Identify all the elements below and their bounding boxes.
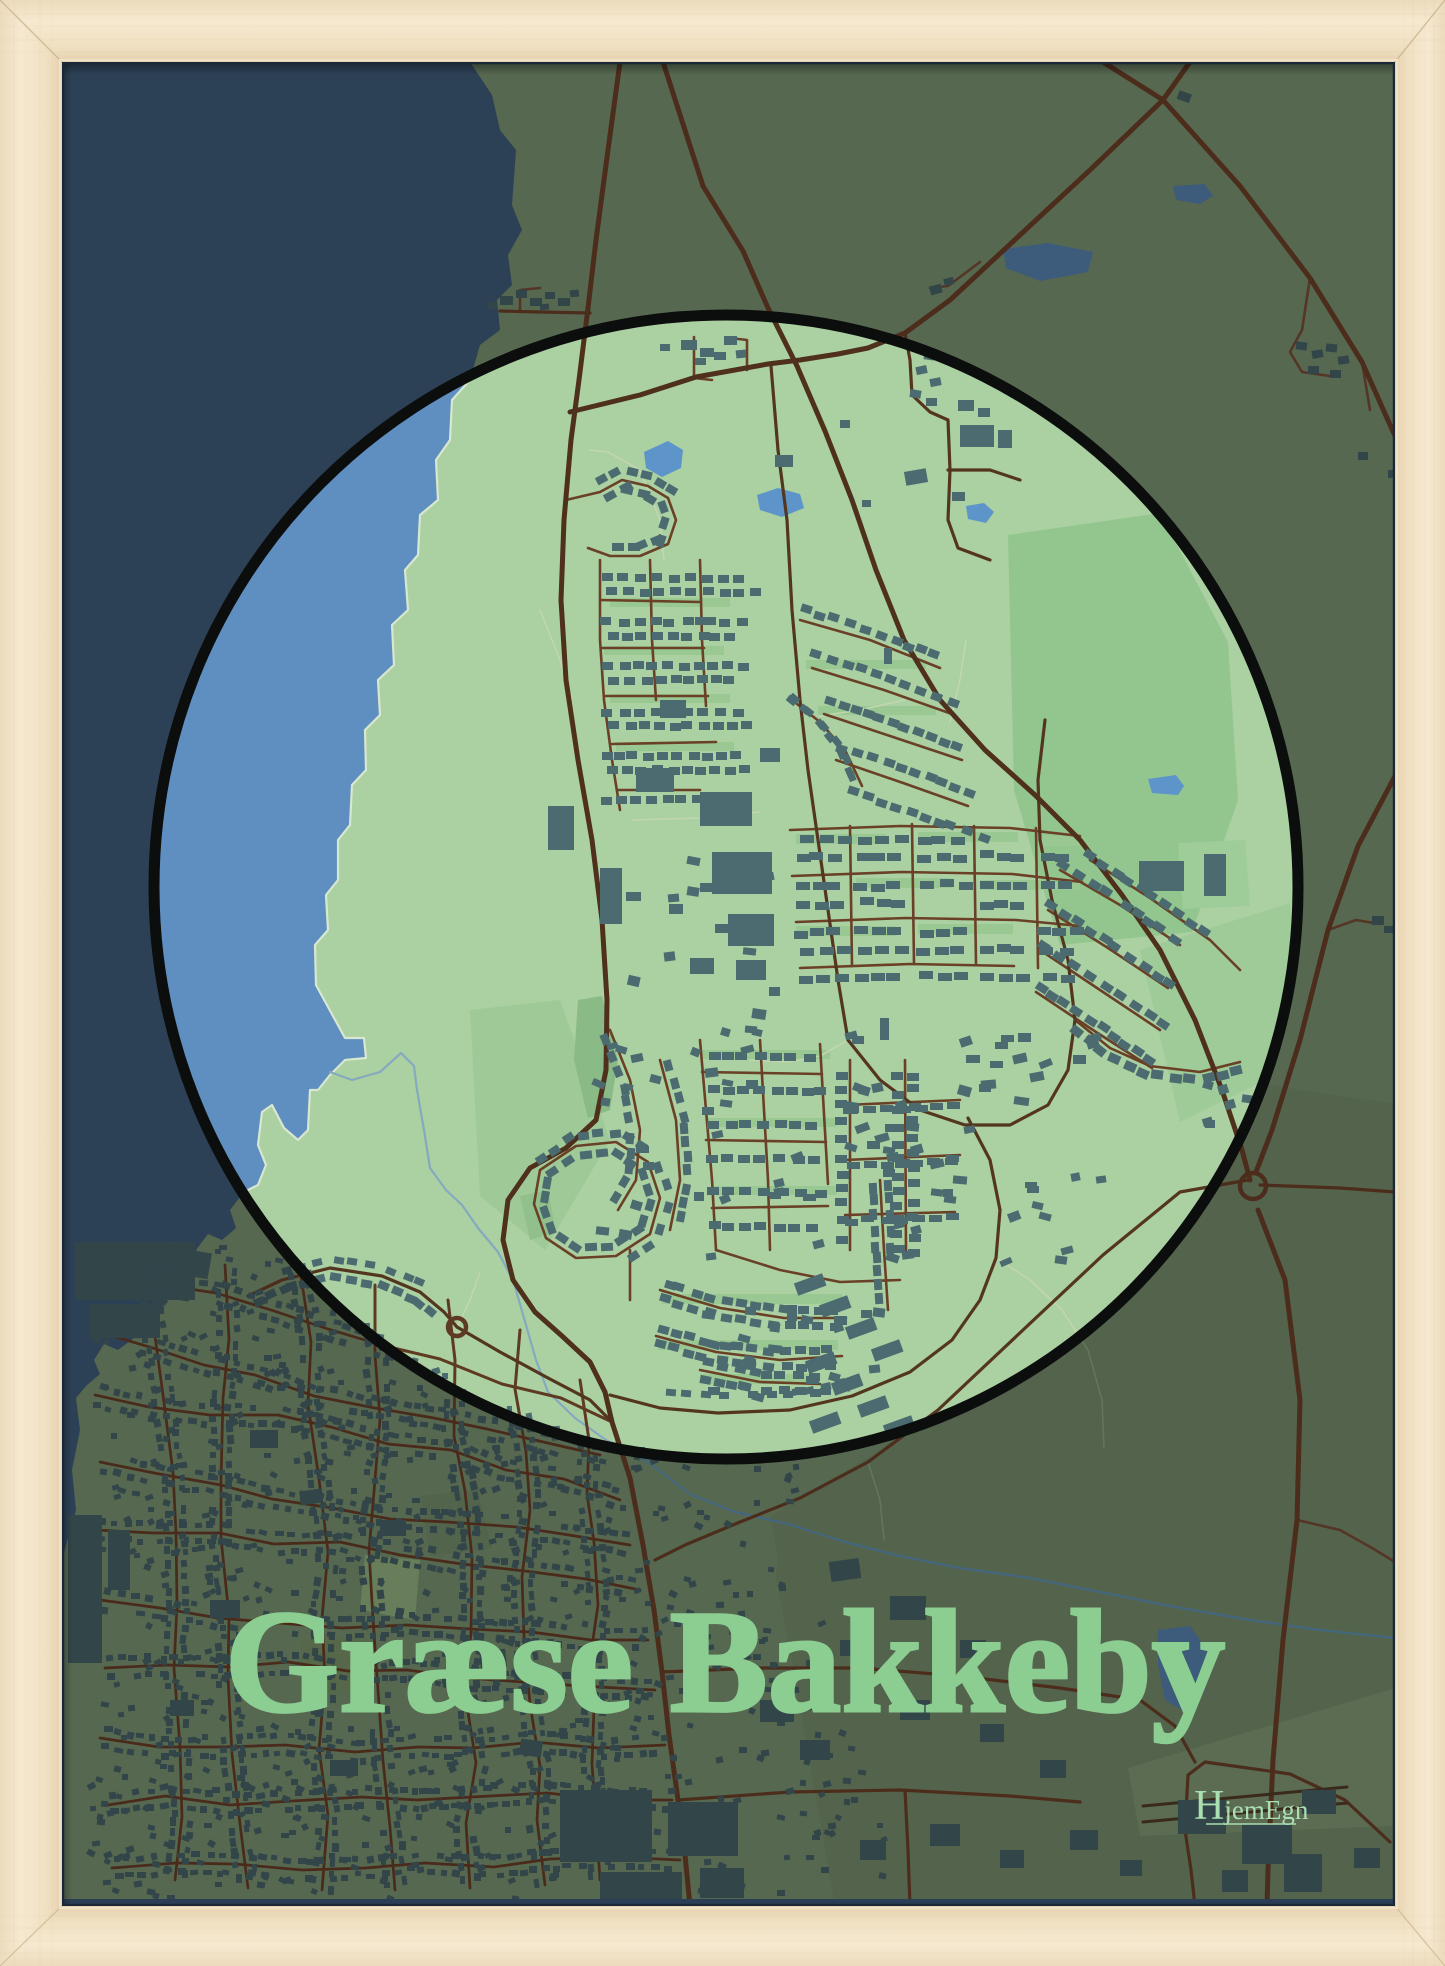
svg-text:Græse Bakkeby: Græse Bakkeby (225, 1580, 1226, 1743)
